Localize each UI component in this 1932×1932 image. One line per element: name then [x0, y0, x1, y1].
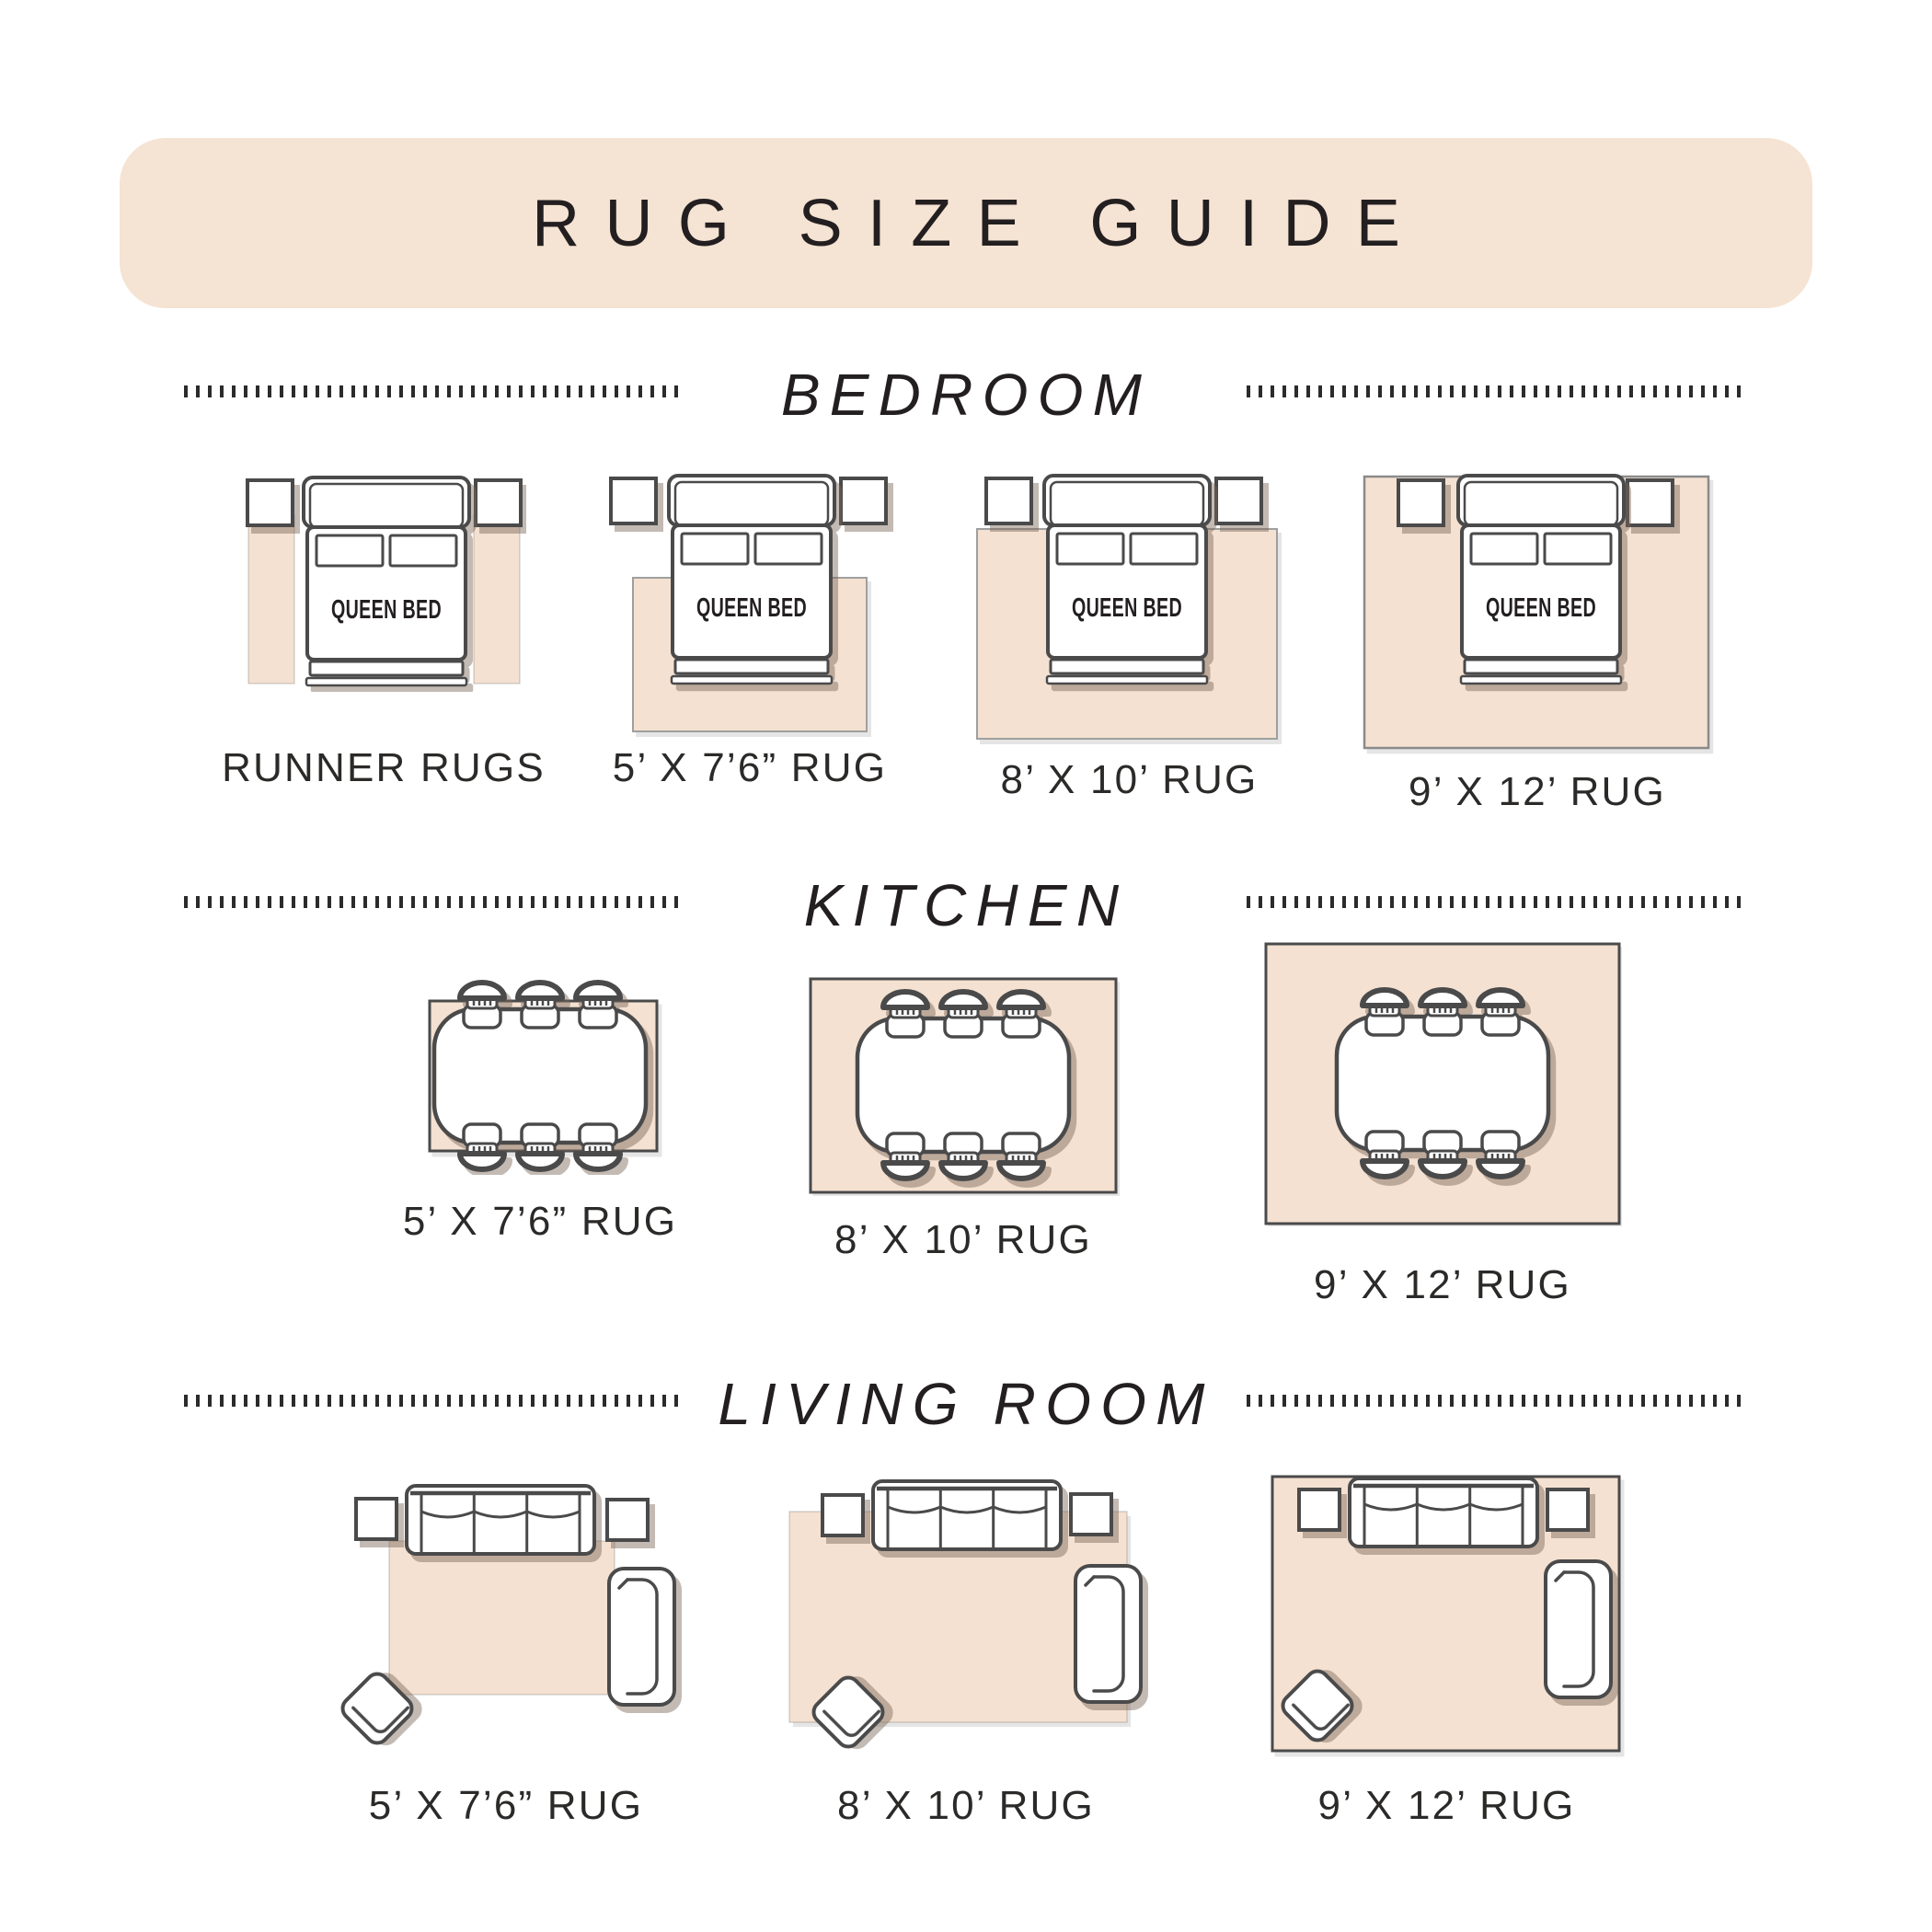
bedroom-9x12-diagram: QUEEN BED 9’ X 12’ RUG: [1358, 465, 1717, 815]
section-title-kitchen: KITCHEN: [804, 872, 1129, 938]
nightstand-icon: [476, 480, 521, 525]
living-9x12-illustration: [1265, 1470, 1628, 1760]
side-table-icon: [356, 1499, 397, 1539]
dining-table-chairs-icon: [1337, 990, 1548, 1177]
queen-bed-icon: [1458, 476, 1624, 684]
kitchen-8x10-illustration: [807, 975, 1120, 1196]
bedroom-5x76-diagram: QUEEN BED 5’ X 7’6” RUG: [603, 469, 897, 791]
queen-bed-icon: [304, 477, 469, 685]
living-5x76-illustration: [327, 1472, 685, 1757]
rug-size-label: 9’ X 12’ RUG: [1314, 1262, 1571, 1308]
runner-rug-left-shape: [248, 515, 294, 684]
section-title-living-room: LIVING ROOM: [718, 1371, 1213, 1437]
rug-size-label: 9’ X 12’ RUG: [1318, 1783, 1576, 1829]
nightstand-icon: [841, 478, 886, 523]
side-table-icon: [1547, 1489, 1588, 1530]
bedroom-9x12-illustration: QUEEN BED: [1358, 465, 1717, 759]
kitchen-9x12-illustration: [1263, 941, 1622, 1226]
bedroom-runner-illustration: QUEEN BED: [241, 471, 526, 692]
kitchen-5x76-diagram: 5’ X 7’6” RUG: [416, 977, 664, 1245]
sofa-icon: [873, 1481, 1061, 1549]
rug-size-label: 9’ X 12’ RUG: [1409, 769, 1666, 815]
kitchen-5x76-illustration: [416, 977, 664, 1175]
side-table-icon: [822, 1495, 863, 1535]
queen-bed-label: QUEEN BED: [1072, 593, 1182, 623]
section-title-bedroom: BEDROOM: [781, 362, 1151, 428]
dotted-divider-kitchen-right: [1247, 896, 1748, 908]
rug-shape: [389, 1541, 615, 1695]
dining-table-chairs-icon: [857, 992, 1069, 1179]
chaise-chair-icon: [1075, 1566, 1141, 1702]
sofa-icon: [407, 1486, 594, 1554]
kitchen-9x12-diagram: 9’ X 12’ RUG: [1263, 941, 1622, 1308]
side-table-icon: [1071, 1494, 1111, 1535]
header-banner: RUG SIZE GUIDE: [120, 138, 1812, 308]
nightstand-icon: [1398, 480, 1443, 525]
dotted-divider-living-right: [1247, 1395, 1748, 1407]
queen-bed-icon: [669, 476, 834, 684]
dotted-divider-bedroom-right: [1247, 385, 1748, 397]
bedroom-8x10-diagram: QUEEN BED 8’ X 10’ RUG: [971, 469, 1288, 803]
living-5x76-diagram: 5’ X 7’6” RUG: [327, 1472, 685, 1829]
chaise-chair-icon: [609, 1569, 674, 1705]
queen-bed-label: QUEEN BED: [1486, 593, 1596, 623]
nightstand-icon: [1627, 480, 1673, 525]
rug-size-label: 8’ X 10’ RUG: [837, 1783, 1095, 1829]
dining-table-chairs-icon: [434, 983, 646, 1169]
rug-size-label: RUNNER RUGS: [222, 745, 546, 791]
living-8x10-illustration: [782, 1467, 1150, 1762]
nightstand-icon: [611, 478, 656, 523]
kitchen-8x10-diagram: 8’ X 10’ RUG: [807, 975, 1120, 1263]
living-8x10-diagram: 8’ X 10’ RUG: [782, 1467, 1150, 1829]
bedroom-runner-diagram: QUEEN BED RUNNER RUGS: [241, 471, 526, 791]
rug-size-label: 8’ X 10’ RUG: [834, 1217, 1092, 1263]
bedroom-8x10-illustration: QUEEN BED: [971, 469, 1288, 750]
side-table-icon: [1299, 1489, 1340, 1530]
rug-size-label: 5’ X 7’6” RUG: [369, 1783, 643, 1829]
nightstand-icon: [247, 480, 293, 525]
rug-size-guide-infographic: RUG SIZE GUIDE BEDROOM QUEEN BED RUNNER …: [0, 0, 1932, 1932]
chaise-chair-icon: [1546, 1561, 1611, 1697]
bedroom-5x76-illustration: QUEEN BED: [603, 469, 897, 745]
runner-rug-right-shape: [474, 515, 520, 684]
rug-size-label: 8’ X 10’ RUG: [1001, 757, 1259, 803]
rug-size-label: 5’ X 7’6” RUG: [613, 745, 887, 791]
queen-bed-icon: [1044, 476, 1210, 684]
living-9x12-diagram: 9’ X 12’ RUG: [1265, 1470, 1628, 1829]
sofa-icon: [1350, 1478, 1537, 1547]
queen-bed-label: QUEEN BED: [696, 593, 807, 623]
page-title: RUG SIZE GUIDE: [507, 186, 1425, 261]
queen-bed-label: QUEEN BED: [331, 595, 442, 625]
nightstand-icon: [986, 478, 1031, 523]
nightstand-icon: [1216, 478, 1261, 523]
rug-size-label: 5’ X 7’6” RUG: [403, 1199, 677, 1245]
side-table-icon: [607, 1500, 648, 1540]
